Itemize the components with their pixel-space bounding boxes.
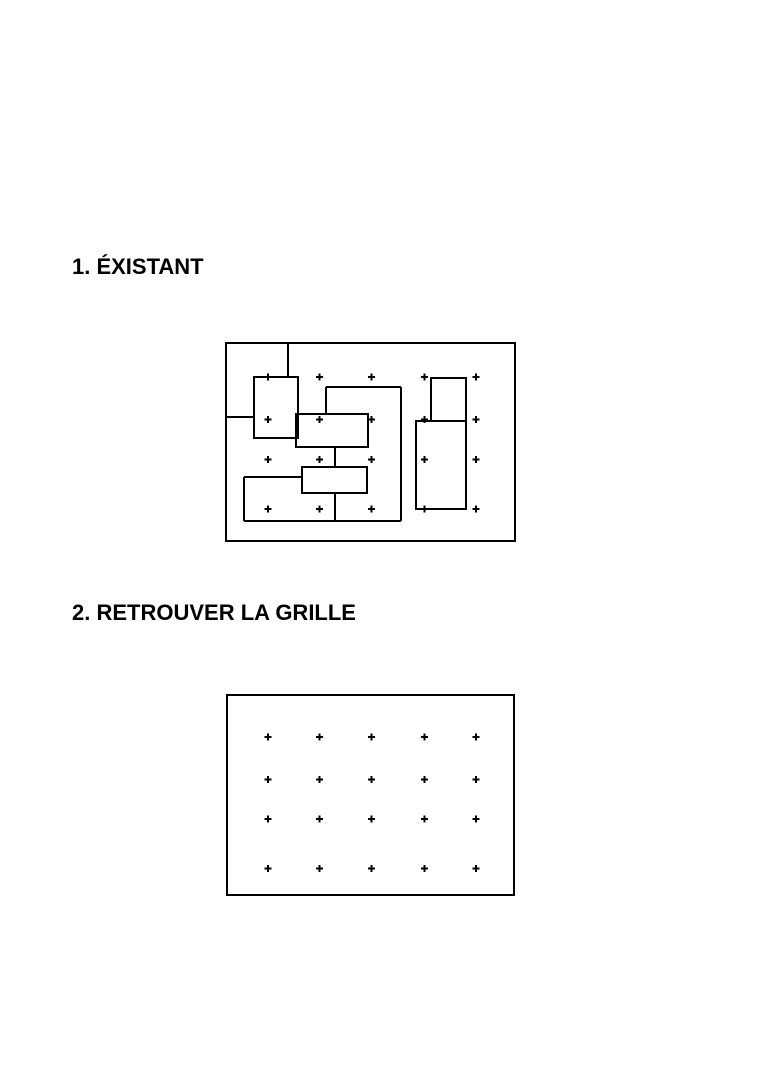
grid-cross [265, 776, 272, 783]
figures-canvas [0, 0, 768, 1086]
grid-cross [421, 506, 428, 513]
grid-cross [316, 865, 323, 872]
grid-cross [368, 456, 375, 463]
grid-cross [316, 506, 323, 513]
grid-cross [265, 374, 272, 381]
grid-cross [473, 416, 480, 423]
grid-cross [368, 374, 375, 381]
grid-cross [368, 816, 375, 823]
grid-cross [265, 456, 272, 463]
figure-existant-plan [226, 343, 515, 541]
grid-cross [473, 456, 480, 463]
figure-empty-grid [227, 695, 514, 895]
wall-rect [431, 378, 466, 421]
grid-cross [421, 734, 428, 741]
grid-cross [368, 776, 375, 783]
grid-cross [265, 865, 272, 872]
grid-cross [368, 734, 375, 741]
grid-cross [316, 374, 323, 381]
wall-rect [296, 414, 368, 447]
grid-cross [421, 374, 428, 381]
grid-cross [368, 416, 375, 423]
grid-cross [473, 374, 480, 381]
document-page: 1. ÉXISTANT 2. RETROUVER LA GRILLE [0, 0, 768, 1086]
section-heading-retrouver-la-grille: 2. RETROUVER LA GRILLE [72, 602, 356, 624]
grid-cross [473, 734, 480, 741]
grid-cross [368, 865, 375, 872]
grid-cross [421, 456, 428, 463]
grid-cross [316, 416, 323, 423]
grid-cross [265, 416, 272, 423]
grid-cross [316, 734, 323, 741]
section-heading-existant: 1. ÉXISTANT [72, 256, 204, 278]
grid-cross [316, 816, 323, 823]
grid-cross [473, 865, 480, 872]
grid-cross [265, 816, 272, 823]
grid-cross [421, 776, 428, 783]
grid-cross [473, 506, 480, 513]
wall-rect [416, 421, 466, 509]
grid-cross [368, 506, 375, 513]
grid-cross [473, 816, 480, 823]
grid-cross [473, 776, 480, 783]
grid-cross [316, 776, 323, 783]
grid-cross [265, 506, 272, 513]
grid-cross [421, 865, 428, 872]
grid-cross [265, 734, 272, 741]
wall-rect [302, 467, 367, 493]
grid-cross [316, 456, 323, 463]
grid-cross [421, 816, 428, 823]
wall-rect [254, 377, 298, 438]
